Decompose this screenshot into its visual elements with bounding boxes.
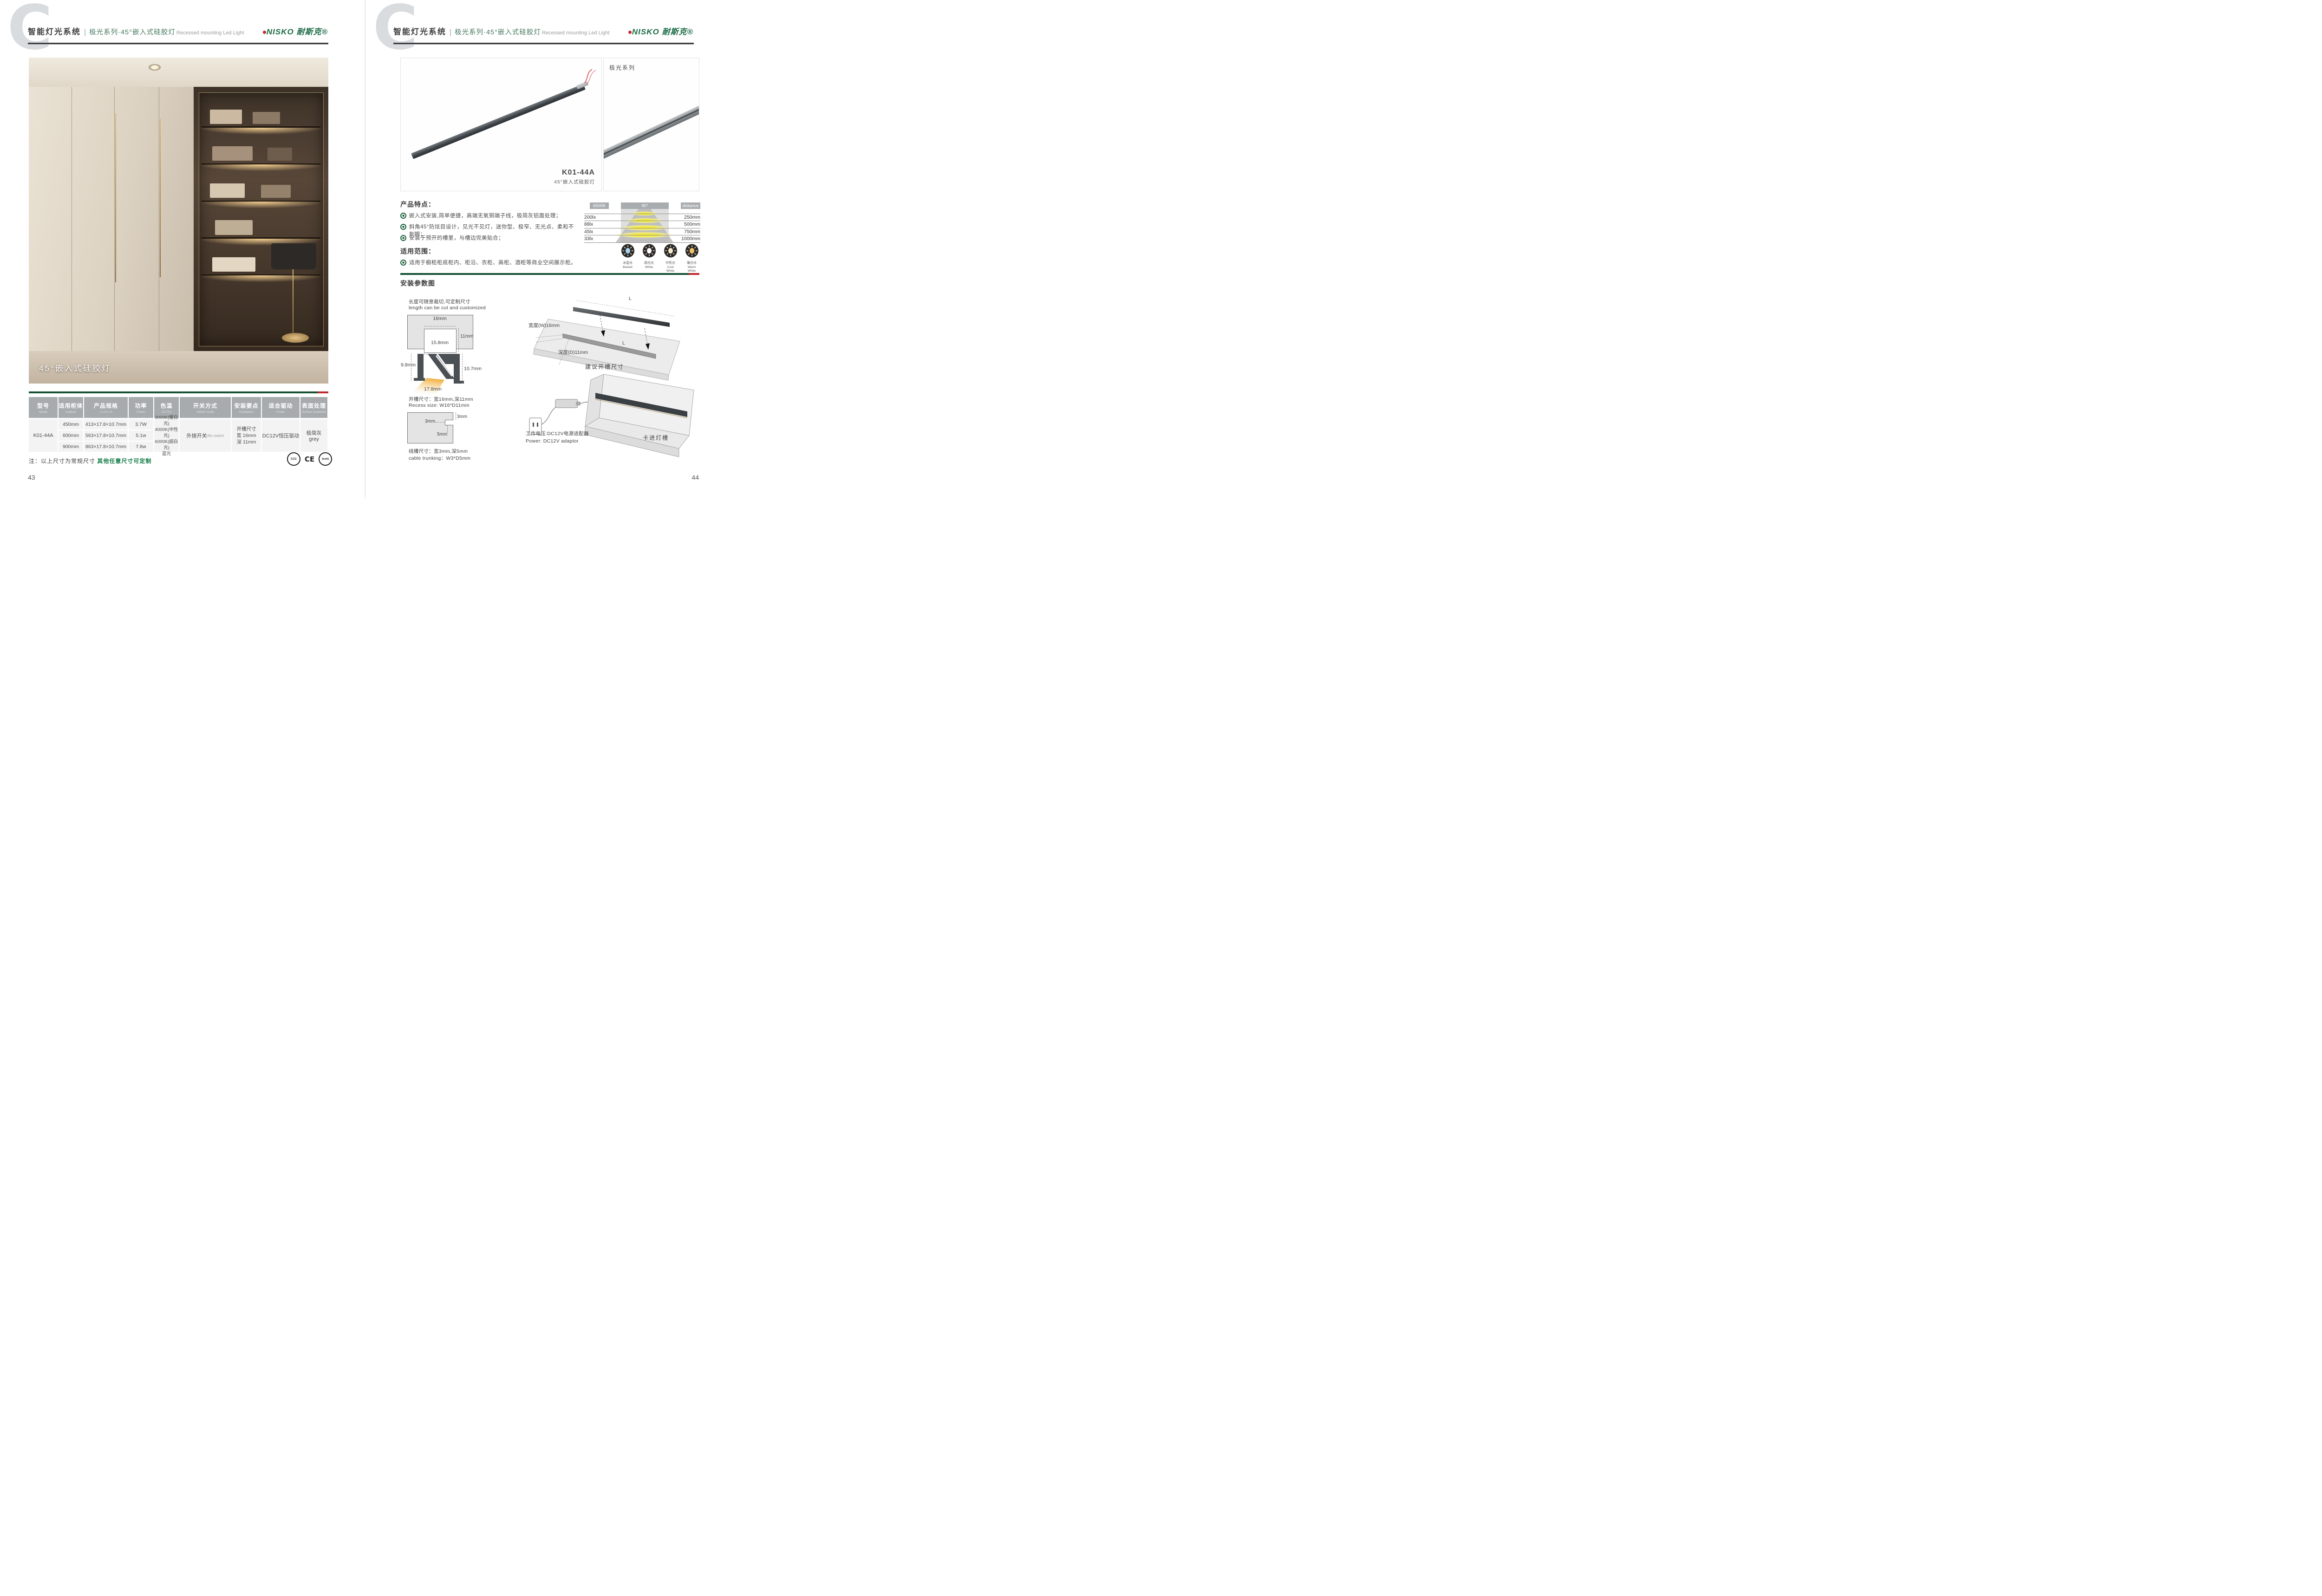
profile-section-drawing (407, 351, 482, 394)
profile-diagram: 9.8mm 10.7mm 17.8mm (407, 351, 482, 394)
page-header: 智能灯光系统 | 极光系列·45°嵌入式硅胶灯 Recessed mountin… (393, 25, 609, 37)
recess-size-en: Recess size: W16*D11mm (409, 403, 470, 408)
bullet-icon (400, 260, 406, 266)
logo-dot-icon (263, 31, 266, 34)
led-profile-image (411, 84, 586, 159)
sun-icon (621, 244, 635, 258)
door-handle (115, 113, 116, 282)
col-driver: 适合驱动Power (262, 397, 300, 418)
col-power: 功率Power (129, 397, 153, 418)
trunking-diagram: 3mm 3mm 5mm (407, 412, 477, 445)
cell-spec: 413×17.8×10.7mm 563×17.8×10.7mm 863×17.8… (84, 419, 128, 452)
cut-note-zh: 长度可随意裁切,可定制尺寸 (409, 298, 470, 305)
cell-driver: DC12V恒压驱动 (262, 419, 300, 452)
red-wires-icon (583, 66, 600, 85)
feature-item: 安装于预开的槽里，与槽边完美贴合； (400, 234, 577, 241)
cct-icon-row: 冰蓝光Basket 超白光White 中性光Cool White (620, 244, 699, 274)
product-model: K01-44A (554, 169, 595, 177)
accent-divider (29, 391, 328, 393)
trunk-notch (445, 420, 453, 425)
power-label-zh: 工作电压:DC12V电源适配器 (526, 430, 589, 437)
page-right: C 智能灯光系统 | 极光系列·45°嵌入式硅胶灯 Recessed mount… (365, 0, 731, 499)
distance-value: 500mm (676, 221, 700, 227)
header-series-title: 极光系列·45°嵌入式硅胶灯 (455, 27, 541, 37)
col-cabinet: 适用柜体Cabinet (59, 397, 83, 418)
scope-title: 适用范围： (400, 247, 435, 256)
product-image-main: K01-44A 45°嵌入式硅胶灯 (400, 58, 602, 191)
page-gutter (365, 0, 365, 499)
cell-power: 3.7W 5.1w 7.8w (129, 419, 153, 452)
depth-label: 深度(D)11mm (558, 349, 588, 356)
trunk-size-zh: 线槽尺寸：宽3mm,深5mm (409, 448, 468, 455)
feature-item: 嵌入式安装,简单便捷，高端无氧铜端子线，极简灰铝面处理； (400, 212, 577, 219)
header-rule (393, 43, 694, 45)
chart-distance-header: distance (681, 202, 700, 209)
cct-icon-coolwhite: 中性光Cool White (663, 244, 678, 274)
cct-icon-white: 超白光White (641, 244, 657, 274)
table-note: 注：以上尺寸为常规尺寸 其他任意尺寸可定制 (29, 457, 151, 465)
product-subtitle: 45°嵌入式硅胶灯 (554, 178, 595, 185)
clip-label: 卡进灯槽 (643, 434, 669, 442)
chart-cct-header: 6500K (590, 202, 609, 209)
series-tag: 极光系列 (609, 64, 635, 72)
cert-icons: CCC CE RoHS (287, 452, 332, 466)
distance-value: 250mm (676, 215, 700, 220)
photometric-chart: 6500K 90° distance 200lx 88lx 45lx 33lx … (584, 202, 700, 243)
spec-table-body: K01-44A 450mm 600mm 900mm 413×17.8×10.7m… (29, 419, 328, 452)
groove-length-label: L (622, 340, 625, 346)
bullet-icon (400, 213, 406, 219)
lux-value: 45lx (584, 229, 608, 235)
bullet-icon (400, 235, 406, 241)
cell-surface: 极简灰 grey (300, 419, 327, 452)
trunk-size-en: cable trunking：W3*D5mm (409, 455, 470, 462)
ccc-icon: CCC (287, 452, 300, 466)
install-title: 安装参数图 (400, 279, 435, 288)
cell-install: 开槽尺寸 宽 16mm 深 11mm (232, 419, 261, 452)
sun-icon (642, 244, 656, 258)
brand-logo: NISKO 耐斯克® (628, 25, 693, 37)
distance-value: 750mm (676, 229, 700, 235)
header-rule (28, 43, 328, 45)
photo-glass-cabinet (194, 87, 328, 351)
header-divider: | (84, 28, 86, 37)
cct-icon-warmwhite: 暖白光Warm White (684, 244, 699, 274)
col-install: 安装要点Installation (232, 397, 261, 418)
features-title: 产品特点： (400, 200, 435, 209)
length-label: L (629, 296, 632, 301)
cell-cabinet: 450mm 600mm 900mm (59, 419, 83, 452)
header-series-title: 极光系列·45°嵌入式硅胶灯 (89, 27, 176, 37)
sun-icon (664, 244, 678, 258)
rohs-icon: RoHS (319, 452, 332, 466)
product-photo: 45°嵌入式硅胶灯 (29, 58, 328, 384)
col-surface: 表面处理Surface treatment (300, 397, 327, 418)
width-label: 宽度(W)16mm (528, 322, 560, 329)
recess-size-zh: 开槽尺寸：宽16mm,深11mm (409, 396, 473, 403)
distance-value: 1000mm (676, 236, 700, 241)
cct-icon-iceblue: 冰蓝光Basket (620, 244, 635, 274)
bullet-icon (400, 224, 406, 230)
scope-item: 适用于橱柜柜底柜内、柜沿、衣柜、高柜、酒柜等商业空间展示柜。 (400, 259, 600, 266)
col-spec: 产品规格L x D x H (84, 397, 128, 418)
cabinet-drawing (526, 366, 702, 477)
chart-angle-header: 90° (621, 202, 669, 209)
power-label-en: Power: DC12V adaptor (526, 438, 579, 444)
header-brand-section: 智能灯光系统 (393, 25, 446, 37)
product-label: K01-44A 45°嵌入式硅胶灯 (554, 169, 595, 185)
brand-logo: NISKO 耐斯克® (262, 25, 328, 37)
photo-caption: 45°嵌入式硅胶灯 (39, 362, 111, 373)
photo-wardrobe-doors (29, 87, 194, 351)
col-switch: 开关方式Switch mode (180, 397, 231, 418)
sun-icon (685, 244, 699, 258)
lux-value: 200lx (584, 215, 608, 220)
downlight-icon (149, 64, 161, 71)
floor-lamp (271, 243, 316, 269)
door-handle (160, 118, 161, 277)
logo-dot-icon (628, 31, 632, 34)
catalog-spread: C 智能灯光系统 | 极光系列·45°嵌入式硅胶灯 Recessed mount… (0, 0, 731, 499)
accent-divider (400, 273, 699, 275)
cell-cct: 3000K(暖白光) 4000K(中性光) 6000K(超白光) 蓝光 (154, 419, 179, 452)
cut-note-en: length can be cut and customized (409, 305, 486, 311)
page-header: 智能灯光系统 | 极光系列·45°嵌入式硅胶灯 Recessed mountin… (28, 25, 244, 37)
lux-value: 33lx (584, 236, 608, 241)
header-divider: | (450, 28, 451, 37)
page-left: C 智能灯光系统 | 极光系列·45°嵌入式硅胶灯 Recessed mount… (0, 0, 365, 499)
lux-value: 88lx (584, 221, 608, 227)
header-brand-section: 智能灯光系统 (28, 25, 81, 37)
product-image-detail: 极光系列 (603, 58, 699, 191)
photo-ceiling (29, 58, 328, 87)
cell-switch: 外接开关/No switch (180, 419, 231, 452)
spec-table: 型号Model 适用柜体Cabinet 产品规格L x D x H 功率Powe… (29, 397, 328, 452)
page-number-left: 43 (28, 474, 35, 481)
header-subtitle-en: Recessed mounting Led Light (542, 30, 610, 36)
header-subtitle-en: Recessed mounting Led Light (176, 30, 244, 36)
ce-icon: CE (305, 455, 314, 463)
cabinet-diagram: 工作电压:DC12V电源适配器 Power: DC12V adaptor 卡进灯… (526, 366, 702, 477)
page-number-right: 44 (691, 474, 699, 481)
cell-model: K01-44A (29, 419, 58, 452)
col-model: 型号Model (29, 397, 58, 418)
